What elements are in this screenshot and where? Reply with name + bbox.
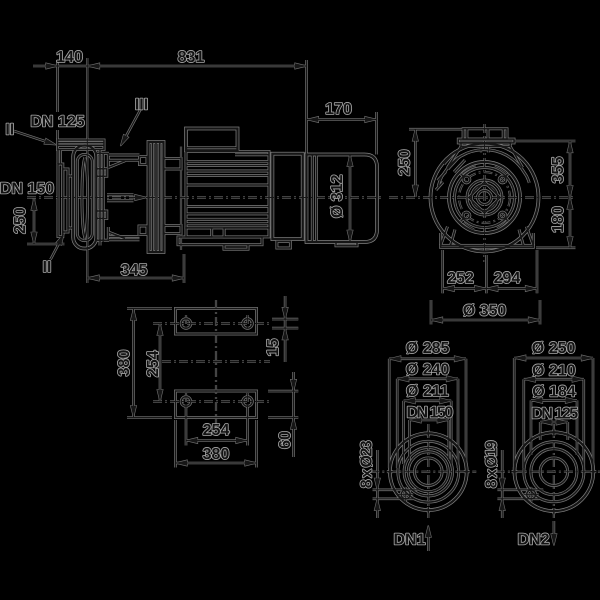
svg-text:380: 380 <box>203 446 230 463</box>
svg-text:Ø 184: Ø 184 <box>532 384 576 401</box>
svg-text:380: 380 <box>116 350 133 377</box>
svg-text:170: 170 <box>325 101 352 118</box>
svg-text:III: III <box>135 96 148 113</box>
svg-text:Ø 250: Ø 250 <box>532 340 576 357</box>
svg-text:140: 140 <box>56 49 83 66</box>
svg-text:DN1: DN1 <box>393 532 425 549</box>
svg-text:Ø 285: Ø 285 <box>406 340 450 357</box>
svg-text:254: 254 <box>145 350 162 377</box>
svg-text:DN 150: DN 150 <box>0 181 54 198</box>
svg-text:Ø 210: Ø 210 <box>532 363 576 380</box>
svg-text:DN 125: DN 125 <box>531 405 578 422</box>
svg-text:252: 252 <box>447 270 474 287</box>
svg-text:345: 345 <box>121 262 148 279</box>
svg-text:8 x Ø23: 8 x Ø23 <box>358 440 375 488</box>
svg-text:DN 150: DN 150 <box>406 405 453 422</box>
svg-text:Ø 350: Ø 350 <box>463 302 507 319</box>
svg-text:II: II <box>5 122 14 139</box>
svg-text:Ø 211: Ø 211 <box>406 383 449 400</box>
svg-text:250: 250 <box>397 149 414 176</box>
svg-text:294: 294 <box>494 270 521 287</box>
svg-text:250: 250 <box>12 207 29 234</box>
svg-text:180: 180 <box>550 206 567 233</box>
svg-text:831: 831 <box>178 49 205 66</box>
svg-text:15: 15 <box>265 339 282 357</box>
svg-text:60: 60 <box>277 431 294 449</box>
svg-text:DN2: DN2 <box>517 532 549 549</box>
svg-text:DN 125: DN 125 <box>30 114 84 131</box>
svg-text:254: 254 <box>203 422 230 439</box>
svg-text:II: II <box>43 259 52 276</box>
svg-text:Ø 240: Ø 240 <box>406 361 450 378</box>
svg-text:Ø 312: Ø 312 <box>329 174 346 218</box>
svg-text:8 x Ø19: 8 x Ø19 <box>483 440 500 488</box>
svg-text:355: 355 <box>550 157 567 184</box>
